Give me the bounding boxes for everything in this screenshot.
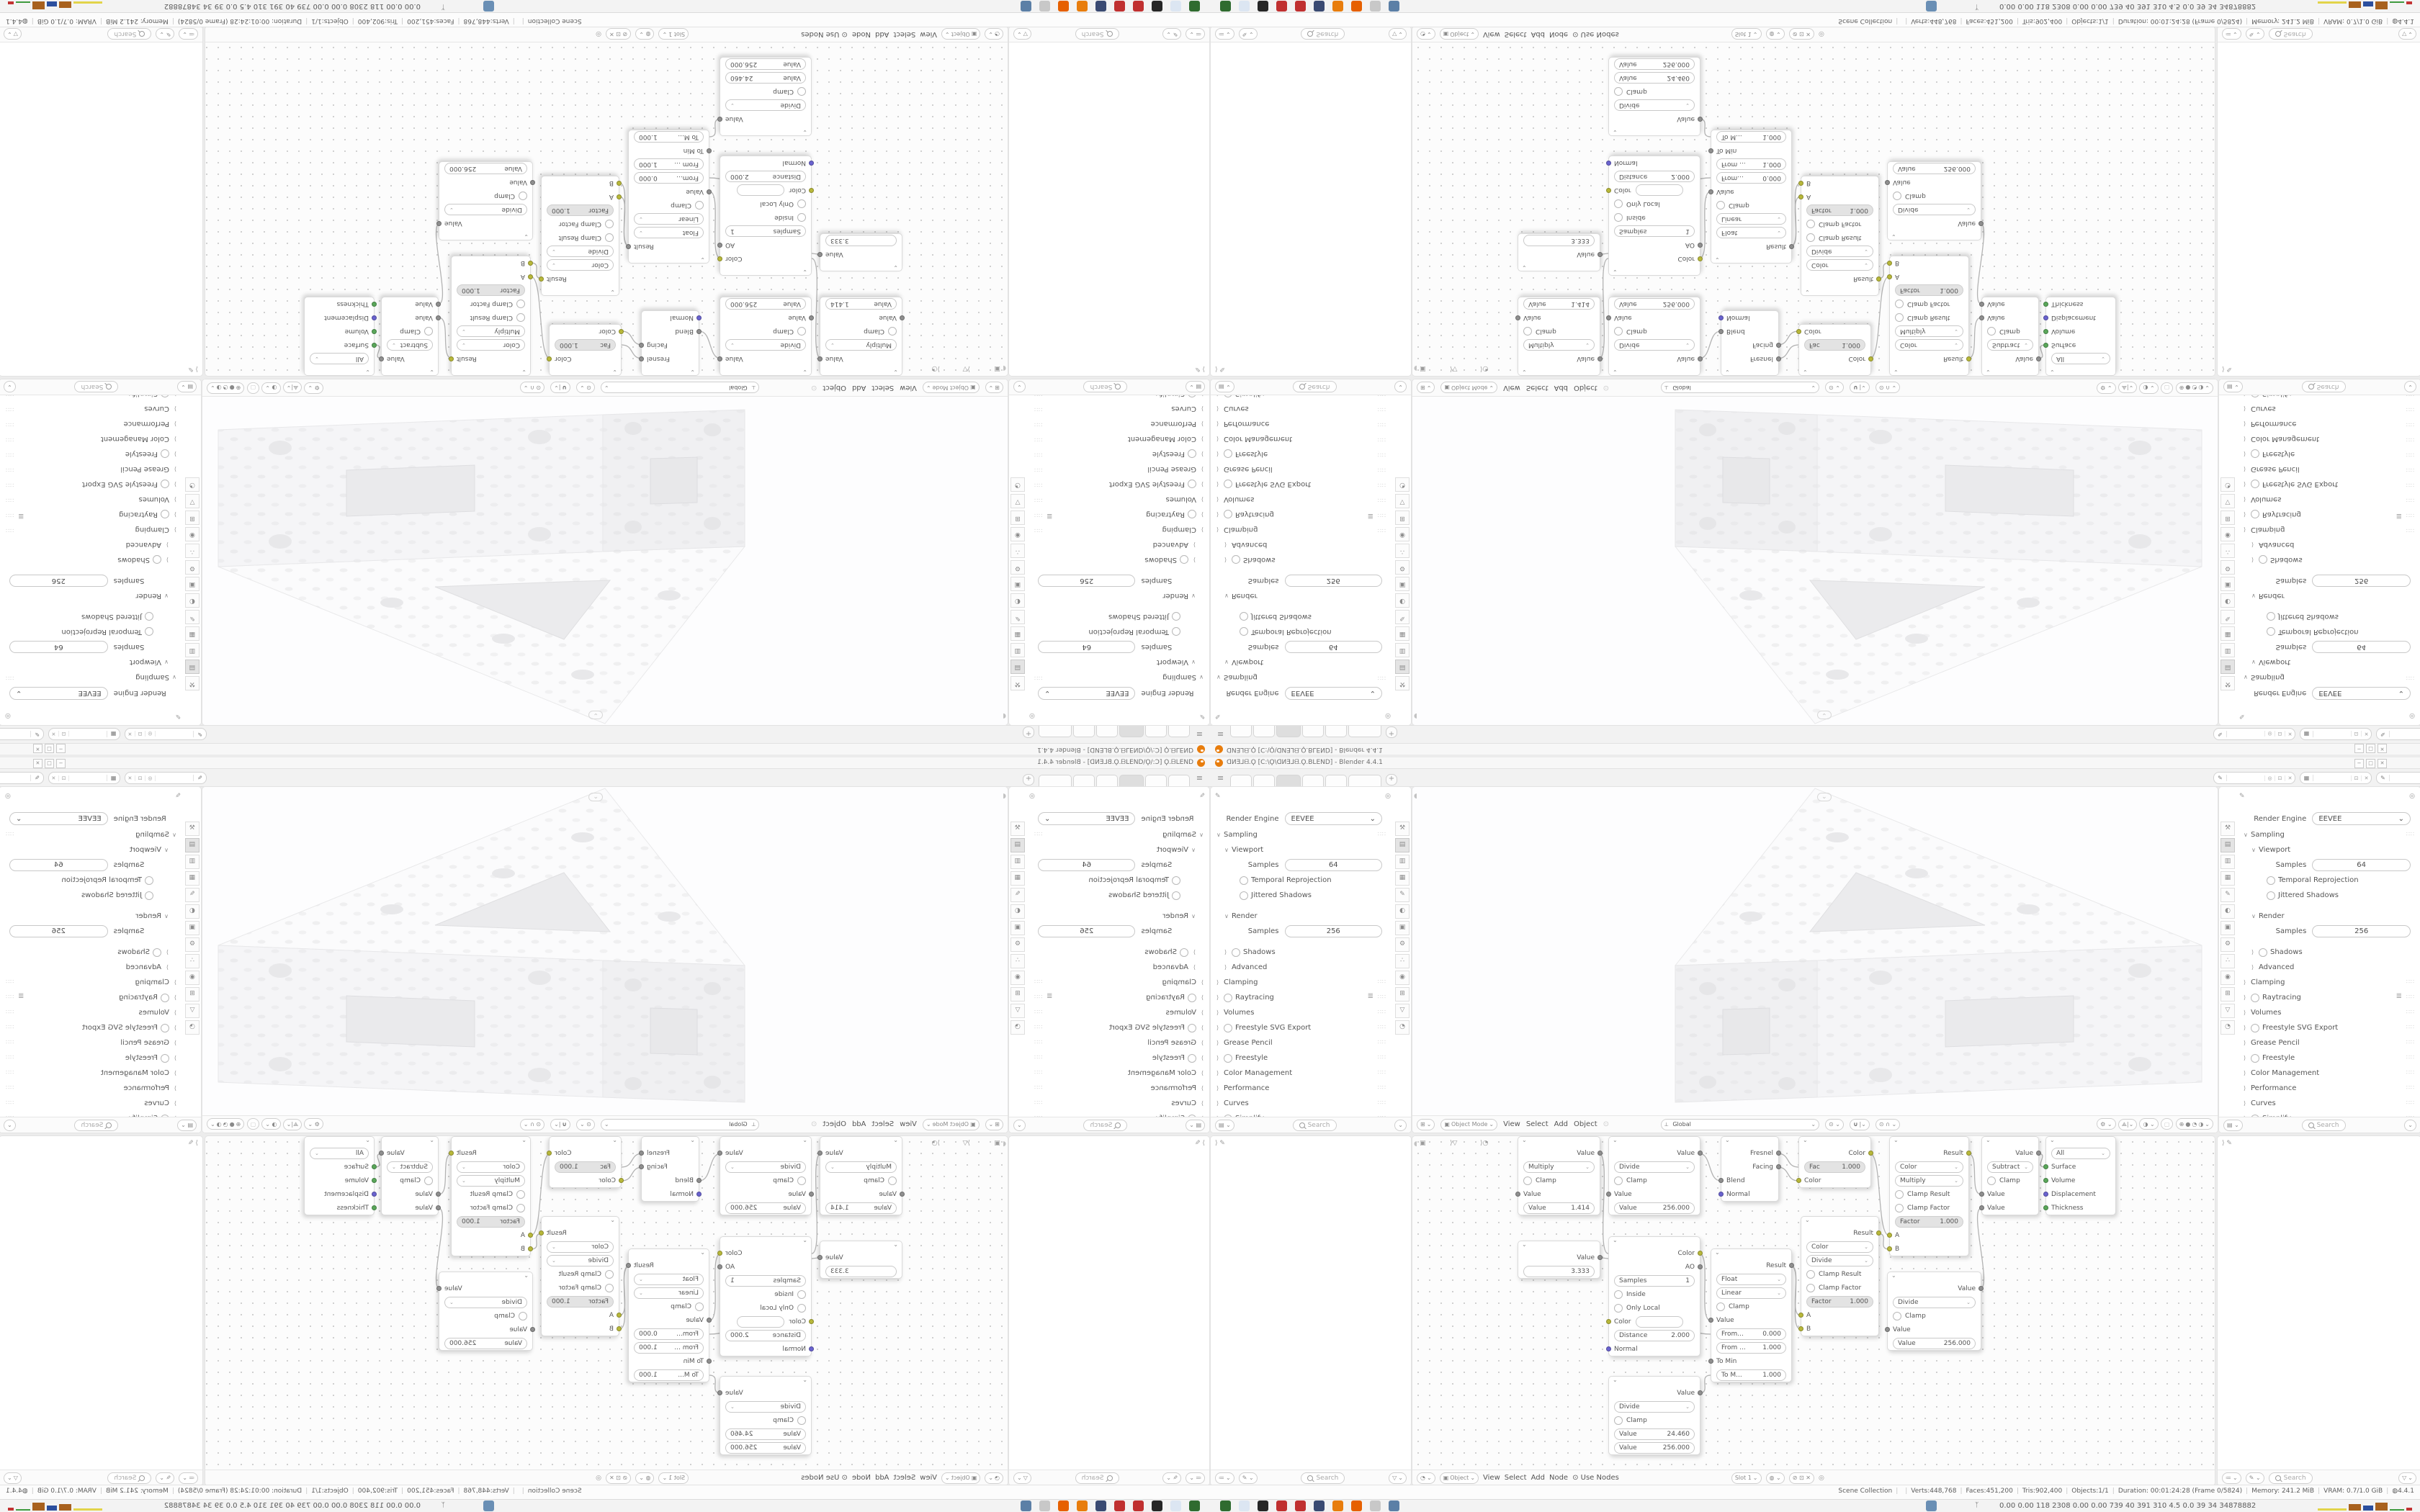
node-checkbox[interactable]	[797, 200, 806, 209]
view-menu[interactable]: View	[920, 30, 937, 38]
node-collapse-icon[interactable]: ⌄	[1518, 366, 1600, 375]
props-section-row[interactable]: ⟩Shadows	[1, 552, 182, 567]
pin-icon[interactable]: ◎	[1385, 712, 1391, 719]
input-socket[interactable]	[1979, 316, 1984, 321]
outliner-corner-icons[interactable]: ⟩ ✎	[188, 365, 198, 372]
props-section-row[interactable]: ∨Viewport	[1, 842, 182, 858]
media-red-icon[interactable]	[1133, 1500, 1144, 1511]
props-field-value[interactable]: 256	[1038, 575, 1136, 587]
notepad-icon[interactable]	[1170, 1, 1181, 12]
shader-node-editor[interactable]: ◖ ▣ ⟩▽ ⟩◔ ⌄ValueMultiply⌄ClampValueValue…	[1412, 1135, 2215, 1486]
props-section-row[interactable]: ⟩Curves∷∷	[1, 401, 182, 416]
copy-icon[interactable]: ⊡	[2275, 775, 2285, 781]
props-section-row[interactable]: ⟩Performance∷∷	[1029, 416, 1209, 431]
terminal-icon[interactable]	[1189, 1500, 1200, 1511]
node-value-field[interactable]: Factor1.000	[1895, 285, 1963, 297]
node-dropdown[interactable]: Float⌄	[634, 1274, 704, 1285]
node-menu[interactable]: Node	[1549, 30, 1568, 38]
output-socket[interactable]	[817, 253, 823, 258]
snap-target-button[interactable]: ⊙ ⌄	[576, 382, 595, 394]
node-value-field[interactable]: Value256.000	[1893, 1338, 1976, 1349]
add-menu[interactable]: Add	[1531, 30, 1545, 38]
section-checkbox[interactable]	[2251, 1024, 2259, 1032]
node-value-field[interactable]: 3.333	[825, 1266, 897, 1277]
node-checkbox[interactable]	[519, 1312, 527, 1320]
editor-type-button[interactable]: ⊞ ⌄	[1417, 382, 1435, 394]
properties-tab-3[interactable]: ▦	[1395, 626, 1410, 641]
media-red-icon[interactable]	[1276, 1, 1287, 12]
node-collapse-icon[interactable]: ⌄	[305, 1137, 374, 1146]
props-field-value[interactable]: 256	[2312, 925, 2411, 937]
node-checkbox[interactable]	[1614, 1416, 1623, 1425]
node-collapse-icon[interactable]: ⌄	[1711, 1249, 1791, 1259]
output-socket[interactable]	[1597, 1151, 1603, 1156]
section-checkbox[interactable]	[1180, 948, 1188, 957]
input-socket[interactable]	[1887, 1233, 1892, 1238]
workspace-tab[interactable]	[1230, 726, 1252, 737]
input-socket[interactable]	[1885, 1327, 1890, 1332]
workspace-tab[interactable]	[1302, 775, 1324, 786]
props-section-row[interactable]: ⟩Shadows	[1029, 945, 1209, 960]
display-icon[interactable]	[1021, 1, 1031, 12]
shader-node[interactable]: ⌄ValueDivide⌄ClampValueValue256.000	[1608, 1136, 1700, 1215]
output-socket[interactable]	[2036, 1151, 2041, 1156]
properties-tab-11[interactable]: ▽	[185, 1004, 200, 1018]
datablock-type-icon[interactable]: ▦	[2300, 775, 2313, 781]
select-menu[interactable]: Select	[1505, 30, 1527, 38]
display-icon[interactable]	[1389, 1500, 1399, 1511]
datablock-type-icon[interactable]: ▦	[2300, 731, 2313, 737]
props-section-row[interactable]: ⟩Freestyle SVG Export∷∷	[1, 1020, 182, 1035]
input-socket[interactable]	[707, 1359, 712, 1364]
filter-type-button[interactable]: ✎ ⌄	[1239, 29, 1258, 40]
props-section-row[interactable]: ⟩Freestyle∷∷	[1029, 1050, 1209, 1066]
output-socket[interactable]	[1966, 1151, 1971, 1156]
input-socket[interactable]	[372, 316, 377, 321]
props-section-row[interactable]: Temporal Reprojection	[1029, 624, 1209, 639]
properties-tab-7[interactable]: ⚙	[1395, 937, 1410, 952]
node-value-field[interactable]: Factor1.000	[1806, 205, 1873, 217]
gizmo-button[interactable]: ⚙ ⌄	[2097, 382, 2115, 394]
props-section-row[interactable]: ∨Sampling∷∷	[1029, 670, 1209, 685]
output-socket[interactable]	[717, 257, 722, 262]
properties-tab-10[interactable]: ⊞	[2220, 987, 2235, 1002]
properties-tab-1[interactable]: ▤	[1395, 838, 1410, 852]
properties-tab-2[interactable]: ▥	[1395, 643, 1410, 657]
maximize-button[interactable]: □	[45, 759, 54, 768]
visibility-button[interactable]: ◑ ⌄	[2139, 382, 2158, 394]
properties-tab-7[interactable]: ⚙	[1010, 560, 1025, 575]
props-section-row[interactable]: Jittered Shadows	[1029, 609, 1209, 624]
output-socket[interactable]	[1597, 1255, 1603, 1260]
select-menu[interactable]: Select	[871, 384, 894, 392]
node-value-field[interactable]: Value24.460	[725, 1428, 806, 1440]
viewport-center-widget[interactable]: ⌄	[588, 793, 603, 801]
properties-tab-1[interactable]: ▤	[1010, 838, 1025, 852]
output-socket[interactable]	[1698, 1390, 1703, 1395]
section-checkbox[interactable]	[1224, 1024, 1232, 1032]
terminal-icon[interactable]	[1189, 1, 1200, 12]
editor-type-button[interactable]: ◔ ⌄	[985, 29, 1003, 40]
node-dropdown[interactable]: Multiply⌄	[1523, 1161, 1595, 1173]
display-mode-button[interactable]: ≔ ⌄	[1186, 1472, 1205, 1484]
outliner-corner-icons[interactable]: ⟩ ✎	[1195, 365, 1205, 372]
orientation-dropdown[interactable]: ⟂ Global⌄	[601, 382, 759, 394]
options-chevron-button[interactable]: ⌄	[2404, 382, 2416, 393]
node-collapse-icon[interactable]: ⌄	[1518, 1241, 1600, 1251]
props-section-row[interactable]: ∨Render	[1, 588, 182, 603]
corner-icon-funnel[interactable]: ⟩▽	[1450, 365, 1457, 372]
props-section-row[interactable]: ∨Sampling∷∷	[2238, 827, 2419, 842]
props-section-row[interactable]: Temporal Reprojection	[1211, 624, 1391, 639]
section-checkbox[interactable]	[1188, 1054, 1196, 1063]
shader-node-editor[interactable]: ◖ ▣ ⟩▽ ⟩◔ ⌄ValueMultiply⌄ClampValueValue…	[1412, 26, 2215, 377]
props-field-value[interactable]: 64	[9, 859, 108, 871]
copy-icon[interactable]: ⊡	[59, 775, 69, 781]
props-section-row[interactable]: ⟩Performance∷∷	[1029, 1081, 1209, 1096]
shading-modes[interactable]: ⊕●◔◑ ⌄	[207, 1118, 244, 1130]
props-section-row[interactable]: ⟩Color Management∷∷	[2238, 1066, 2419, 1081]
props-section-row[interactable]: ⟩Raytracing≣∷∷	[1029, 990, 1209, 1005]
section-checkbox[interactable]	[161, 510, 169, 519]
object-menu[interactable]: Object	[1574, 1120, 1597, 1128]
props-section-row[interactable]: ∨Render	[1211, 588, 1391, 603]
props-section-row[interactable]: ⟩Freestyle SVG Export∷∷	[2238, 1020, 2419, 1035]
props-section-row[interactable]: ⟩Advanced	[1211, 960, 1391, 975]
props-section-row[interactable]: ⟩Advanced	[1, 537, 182, 552]
shader-node[interactable]: ⌄ResultColor⌄Divide⌄Clamp ResultClamp Fa…	[541, 176, 619, 296]
input-socket[interactable]	[617, 1313, 622, 1318]
properties-tab-12[interactable]: ◔	[1010, 1020, 1025, 1035]
window-titlebar[interactable]: ᗡИƎ⅃ᗺ.Ϙ [C:\Ϙ\ᗡИƎ⅃ᗺ.Ϙ.BLEND] - Blender 4…	[1210, 743, 2420, 755]
floppy64-icon[interactable]	[1095, 1, 1106, 12]
node-collapse-icon[interactable]: ⌄	[720, 266, 811, 275]
node-collapse-icon[interactable]: ⌄	[452, 1137, 530, 1146]
add-menu[interactable]: Add	[852, 1120, 866, 1128]
node-value-field[interactable]: Factor1.000	[1806, 1296, 1873, 1308]
snap-target-button[interactable]: ⊙ ⌄	[1825, 382, 1844, 394]
node-value-field[interactable]: Value256.000	[725, 59, 806, 71]
workspace-tab[interactable]	[1145, 775, 1167, 786]
maximize-button[interactable]: □	[2366, 744, 2375, 753]
pin-icon[interactable]: ◎	[145, 732, 156, 737]
properties-tab-8[interactable]: ∴	[1395, 544, 1410, 558]
node-checkbox[interactable]	[1614, 1290, 1623, 1299]
filter-type-button[interactable]: ✎ ⌄	[2246, 29, 2264, 40]
properties-search[interactable]: Search	[1083, 1120, 1127, 1131]
datablock-name-field[interactable]	[156, 773, 193, 783]
overlays-button[interactable]: ⟁|⌄	[2118, 1119, 2138, 1130]
props-section-row[interactable]: ⟩Volumes∷∷	[1211, 1005, 1391, 1020]
shader-node[interactable]: ⌄ResultColor⌄Multiply⌄Clamp ResultClamp …	[1889, 1136, 1969, 1256]
props-section-row[interactable]: Jittered Shadows	[2238, 888, 2419, 903]
section-checkbox[interactable]	[2251, 480, 2259, 489]
datablock-name-field[interactable]	[2390, 729, 2420, 739]
props-section-row[interactable]: ⟩Curves∷∷	[2238, 1096, 2419, 1111]
props-section-row[interactable]: ⟩Curves∷∷	[1, 1096, 182, 1111]
shader-node[interactable]: ⌄ColorFac1.000Color	[549, 324, 622, 376]
properties-tab-11[interactable]: ▽	[185, 494, 200, 508]
corner-icon-square[interactable]: ▣	[994, 365, 1000, 372]
props-section-row[interactable]: ∨Sampling∷∷	[2238, 670, 2419, 685]
props-section-row[interactable]: ⟩Shadows	[1029, 552, 1209, 567]
properties-tab-9[interactable]: ◉	[185, 527, 200, 541]
props-section-row[interactable]: ⟩Grease Pencil∷∷	[1029, 462, 1209, 477]
properties-tab-0[interactable]: ⚒	[2220, 822, 2235, 836]
node-checkbox[interactable]	[1614, 214, 1623, 222]
props-section-row[interactable]: ⟩Grease Pencil∷∷	[2238, 462, 2419, 477]
slot-dropdown[interactable]: Slot 1 ⌄	[1731, 1472, 1762, 1484]
outliner-search[interactable]: Search	[1301, 1472, 1345, 1484]
props-section-row[interactable]: ⟩Volumes∷∷	[2238, 1005, 2419, 1020]
node-value-field[interactable]: Value256.000	[1614, 1442, 1695, 1454]
section-checkbox[interactable]	[1240, 876, 1248, 885]
menu-hamburger-icon[interactable]: ≡	[1217, 773, 1224, 783]
input-socket[interactable]	[900, 1192, 905, 1197]
props-section-row[interactable]: Jittered Shadows	[1, 888, 182, 903]
input-socket[interactable]	[1718, 316, 1724, 321]
section-checkbox[interactable]	[1240, 628, 1248, 636]
output-socket[interactable]	[436, 1286, 442, 1291]
node-value-field[interactable]: Value24.460	[725, 73, 806, 84]
properties-search[interactable]: Search	[2302, 1120, 2346, 1131]
props-section-row[interactable]: ⟩Freestyle SVG Export∷∷	[1, 477, 182, 492]
props-section-row[interactable]: ⟩Raytracing≣∷∷	[2238, 990, 2419, 1005]
section-checkbox[interactable]	[2251, 510, 2259, 519]
datablock-selector[interactable]: ✎◎⊡✕	[125, 772, 207, 784]
orientation-dropdown[interactable]: ⟂ Global⌄	[1661, 382, 1819, 394]
output-socket[interactable]	[626, 245, 631, 250]
properties-tab-12[interactable]: ◔	[1010, 477, 1025, 492]
input-socket[interactable]	[2043, 330, 2048, 335]
node-checkbox[interactable]	[1806, 234, 1815, 243]
outliner-search[interactable]: Search	[2269, 29, 2313, 40]
copy-icon[interactable]: ⊡	[135, 775, 145, 781]
node-value-field[interactable]: Factor1.000	[547, 1296, 614, 1308]
output-socket[interactable]	[717, 1151, 722, 1156]
section-checkbox[interactable]	[161, 480, 169, 489]
proportional-edit-button[interactable]: ⊙ ∩ ⌄	[520, 382, 544, 394]
shader-node[interactable]: ⌄FresnelFacingBlendNormal	[641, 1136, 699, 1202]
node-checkbox[interactable]	[519, 192, 527, 201]
props-section-row[interactable]: ∨Sampling∷∷	[1029, 827, 1209, 842]
node-checkbox[interactable]	[1716, 202, 1725, 210]
workspace-tab[interactable]	[1096, 775, 1118, 786]
editor-type-button[interactable]: ▤ ⌄	[177, 1120, 197, 1131]
workspace-tab[interactable]	[1145, 726, 1167, 737]
node-collapse-icon[interactable]: ⌄	[382, 366, 438, 375]
section-checkbox[interactable]	[1188, 450, 1196, 459]
output-socket[interactable]	[1876, 277, 1881, 282]
section-checkbox[interactable]	[2267, 613, 2275, 621]
display-mode-button[interactable]: ≔ ⌄	[2222, 1472, 2241, 1484]
node-collapse-icon[interactable]: ⌄	[439, 230, 532, 240]
viewport-center-widget[interactable]: ⌄	[1817, 793, 1832, 801]
props-section-row[interactable]: ∨Render	[2238, 588, 2419, 603]
shader-node[interactable]: ⌄FresnelFacingBlendNormal	[641, 310, 699, 376]
workspace-tab[interactable]	[1348, 775, 1381, 786]
node-checkbox[interactable]	[605, 1284, 614, 1292]
node-dropdown[interactable]: Divide⌄	[1806, 246, 1873, 258]
output-socket[interactable]	[539, 277, 544, 282]
minimize-button[interactable]: −	[2354, 759, 2364, 768]
props-section-row[interactable]: ⟩Color Management∷∷	[1, 1066, 182, 1081]
add-workspace-button[interactable]: +	[1023, 774, 1034, 786]
shader-type-dropdown[interactable]: ▣ Object ⌄	[941, 1472, 980, 1484]
view-menu[interactable]: View	[900, 1120, 917, 1128]
gimp-icon[interactable]	[1152, 1500, 1162, 1511]
gizmo-button[interactable]: ⚙ ⌄	[304, 1118, 323, 1130]
props-field-value[interactable]: 64	[1038, 641, 1136, 653]
menu-hamburger-icon[interactable]: ≡	[1196, 729, 1203, 739]
settings-red-icon[interactable]	[1114, 1500, 1125, 1511]
use-nodes-checkbox[interactable]: ⊙ Use Nodes	[1572, 1474, 1619, 1482]
properties-tab-12[interactable]: ◔	[185, 477, 200, 492]
node-checkbox[interactable]	[695, 1302, 704, 1311]
section-checkbox[interactable]	[1224, 480, 1232, 489]
menu-hamburger-icon[interactable]: ≡	[1217, 729, 1224, 739]
input-socket[interactable]	[1606, 316, 1611, 321]
input-socket[interactable]	[2043, 1164, 2048, 1169]
properties-tab-7[interactable]: ⚙	[185, 937, 200, 952]
editor-type-button[interactable]: ⊞ ⌄	[985, 382, 1003, 394]
input-socket[interactable]	[696, 316, 702, 321]
input-socket[interactable]	[528, 1246, 533, 1251]
gimp-icon[interactable]	[1258, 1, 1268, 12]
props-section-row[interactable]: ∨Sampling∷∷	[1, 670, 182, 685]
properties-tab-2[interactable]: ▥	[1010, 855, 1025, 869]
node-value-field[interactable]: Value256.000	[1614, 59, 1695, 71]
properties-tab-5[interactable]: ◐	[2220, 904, 2235, 919]
node-collapse-icon[interactable]: ⌄	[1721, 1137, 1778, 1146]
floppy64-icon[interactable]	[1095, 1500, 1106, 1511]
props-section-row[interactable]: Jittered Shadows	[2238, 609, 2419, 624]
node-dropdown[interactable]: Float⌄	[1716, 228, 1786, 239]
unlink-icon[interactable]: ✕	[125, 732, 135, 737]
node-value-field[interactable]: From...0.000	[634, 1328, 704, 1340]
props-section-row[interactable]: Temporal Reprojection	[2238, 624, 2419, 639]
node-value-field[interactable]: To M...1.000	[634, 1369, 704, 1381]
properties-tab-6[interactable]: ▣	[185, 577, 200, 591]
toolbar-collapse-handle[interactable]: ◖	[1003, 1140, 1006, 1148]
section-checkbox[interactable]	[161, 1024, 169, 1032]
output-socket[interactable]	[1978, 222, 1984, 227]
material-datablock[interactable]: ⊘ ⊡ ✕	[1789, 1472, 1814, 1484]
props-section-row[interactable]: ⟩Advanced	[1029, 537, 1209, 552]
input-socket[interactable]	[619, 330, 624, 335]
props-section-row[interactable]: ∨Viewport	[1029, 842, 1209, 858]
filter-button[interactable]: ▽ ⌄	[1013, 29, 1031, 40]
props-section-row[interactable]: ∨Viewport	[1029, 654, 1209, 670]
outliner-right[interactable]: ⟩ ✎ ≔ ⌄ ✎ ⌄ Search ▽ ⌄	[2217, 1135, 2420, 1486]
viewport-center-widget[interactable]: ⌄	[588, 711, 603, 719]
node-value-field[interactable]: Samples1	[725, 226, 806, 238]
props-section-row[interactable]: ⟩Color Management∷∷	[1029, 1066, 1209, 1081]
shader-type-dropdown[interactable]: ▣ Object ⌄	[1440, 1472, 1479, 1484]
node-dropdown[interactable]: Multiply⌄	[457, 326, 525, 338]
options-chevron-button[interactable]: ⌄	[4, 1120, 16, 1131]
section-checkbox[interactable]	[1172, 891, 1180, 900]
shader-node[interactable]: ⌄ResultColor⌄Divide⌄Clamp ResultClamp Fa…	[1801, 176, 1879, 296]
output-socket[interactable]	[1966, 357, 1971, 362]
output-socket[interactable]	[379, 357, 384, 362]
node-dropdown[interactable]: All⌄	[2051, 1148, 2110, 1159]
editor-type-button[interactable]: ▤ ⌄	[1186, 1120, 1205, 1131]
section-checkbox[interactable]	[153, 556, 161, 564]
shader-node[interactable]: ⌄ValueDivide⌄ClampValue24.460Value256.00…	[720, 1376, 812, 1455]
node-dropdown[interactable]: Float⌄	[1716, 1274, 1786, 1285]
properties-tab-8[interactable]: ∴	[1395, 954, 1410, 968]
properties-tab-5[interactable]: ◐	[1010, 904, 1025, 919]
pin-icon[interactable]: ◎	[5, 793, 11, 800]
color-swatch-field[interactable]	[1636, 185, 1683, 197]
props-section-row[interactable]: ⟩Curves∷∷	[1211, 1096, 1391, 1111]
datablock-selector[interactable]: ✎◎⊡✕	[0, 772, 44, 784]
view-menu[interactable]: View	[1483, 30, 1500, 38]
display-mode-button[interactable]: ≔ ⌄	[1215, 1472, 1234, 1484]
pin-icon[interactable]: ◎	[1385, 793, 1391, 800]
node-collapse-icon[interactable]: ⌄	[642, 1137, 699, 1146]
node-collapse-icon[interactable]: ⌄	[720, 1237, 811, 1246]
node-collapse-icon[interactable]: ⌄	[439, 1272, 532, 1282]
properties-tab-6[interactable]: ▣	[185, 921, 200, 935]
shader-node[interactable]: ⌄ValueSubtract⌄ClampValueValue	[1981, 297, 2039, 376]
input-socket[interactable]	[1887, 261, 1892, 266]
properties-tab-4[interactable]: ✎	[1395, 610, 1410, 624]
datablock-selector[interactable]: ✎◎⊡✕	[2376, 772, 2420, 784]
settings-red-icon[interactable]	[1114, 1, 1125, 12]
node-collapse-icon[interactable]: ⌄	[2046, 366, 2115, 375]
input-socket[interactable]	[1887, 275, 1892, 280]
node-menu[interactable]: Node	[1549, 1474, 1568, 1482]
props-field-value[interactable]: 64	[1285, 859, 1383, 871]
shader-node[interactable]: ⌄ResultColor⌄Divide⌄Clamp ResultClamp Fa…	[541, 1216, 619, 1336]
props-section-row[interactable]: ⟩Color Management∷∷	[1029, 431, 1209, 446]
node-collapse-icon[interactable]: ⌄	[1609, 1377, 1700, 1386]
output-socket[interactable]	[817, 1151, 823, 1156]
node-value-field[interactable]: Fac1.000	[1804, 1161, 1865, 1173]
output-socket[interactable]	[1698, 1251, 1703, 1256]
props-section-row[interactable]: Temporal Reprojection	[1, 873, 182, 888]
pin-icon[interactable]: ◎	[2409, 712, 2415, 719]
add-workspace-button[interactable]: +	[1386, 774, 1397, 786]
node-value-field[interactable]: Value256.000	[1893, 163, 1976, 175]
proportional-edit-button[interactable]: ⊙ ∩ ⌄	[520, 1119, 544, 1130]
pin-icon[interactable]: ◎	[2409, 793, 2415, 800]
shader-node[interactable]: ⌄Value3.333	[1518, 1241, 1600, 1279]
props-section-row[interactable]: ⟩Curves∷∷	[1029, 1096, 1209, 1111]
shader-type-dropdown[interactable]: ▣ Object ⌄	[1440, 29, 1479, 40]
output-socket[interactable]	[1698, 117, 1703, 122]
inactive-app-icon[interactable]	[1370, 1500, 1381, 1511]
node-dropdown[interactable]: All⌄	[2051, 354, 2110, 365]
node-value-field[interactable]: Value256.000	[725, 299, 806, 310]
display-icon[interactable]	[1021, 1500, 1031, 1511]
properties-tab-7[interactable]: ⚙	[1010, 937, 1025, 952]
section-checkbox[interactable]	[1172, 876, 1180, 885]
editor-type-button[interactable]: ⊞ ⌄	[1417, 1119, 1435, 1130]
blender-icon[interactable]	[1077, 1500, 1088, 1511]
menger-sponge-cube[interactable]	[1412, 398, 2218, 725]
node-dropdown[interactable]: Multiply⌄	[1523, 340, 1595, 351]
input-socket[interactable]	[1887, 1246, 1892, 1251]
toolbar-collapse-handle[interactable]: ◖	[1414, 1140, 1417, 1148]
datablock-name-field[interactable]	[69, 773, 107, 783]
node-dropdown[interactable]: Color⌄	[1806, 260, 1873, 271]
node-dropdown[interactable]: Float⌄	[634, 228, 704, 239]
datablock-selector[interactable]: ▦⊡✕	[2300, 772, 2372, 784]
node-collapse-icon[interactable]: ⌄	[1799, 366, 1870, 375]
